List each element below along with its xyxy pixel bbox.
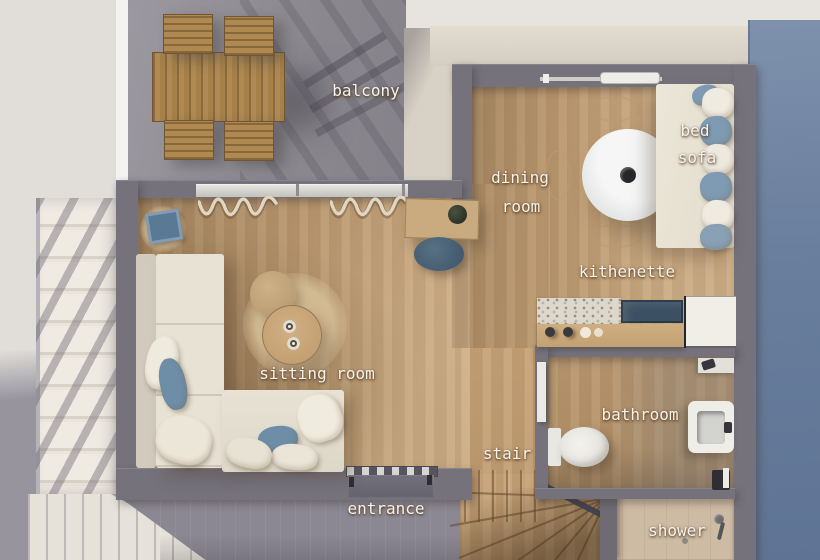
kitchen-faucet-knob: [545, 327, 555, 337]
balcony-chair: [224, 16, 274, 56]
window-frame-divider: [296, 184, 299, 196]
balcony-chair: [224, 121, 274, 161]
desk-stool: [414, 237, 464, 271]
dining-door-handle: [600, 72, 660, 84]
shower-partition-wall: [600, 494, 617, 560]
louvre-roof-strip: [36, 198, 122, 494]
label-entrance: entrance: [347, 499, 424, 518]
coffee-cup: [287, 337, 300, 350]
label-bed-sofa-line1: bed: [681, 121, 710, 140]
dining-door-bracket: [543, 74, 549, 83]
entrance-door: [348, 475, 434, 498]
balcony-dining-table: [152, 52, 285, 122]
sink-faucet: [724, 422, 732, 433]
entrance-door-handle: [427, 475, 432, 485]
adjacent-roof-panel: [748, 20, 820, 560]
label-bed-sofa-line2: sofa: [678, 148, 717, 167]
bathroom-wall-fixture-panel: [723, 468, 729, 488]
kitchen-white-block: [684, 296, 736, 348]
coffee-cup: [283, 320, 296, 333]
wall-bathroom-bottom: [535, 488, 735, 499]
label-balcony: balcony: [332, 81, 399, 100]
balcony-chair: [164, 120, 214, 160]
label-dining-room-line1: dining: [491, 168, 549, 187]
label-kitchenette: kithenette: [579, 262, 675, 281]
dining-table-centerpiece: [620, 167, 636, 183]
floorplan-render: balcony dining room bed sofa kithenette …: [0, 0, 820, 560]
label-stair: stair: [483, 444, 531, 463]
wall-outer-right: [734, 64, 756, 560]
kitchen-faucet-knob: [563, 327, 573, 337]
label-sitting-room: sitting room: [259, 364, 375, 383]
dining-door-bracket: [652, 73, 658, 82]
balcony-chair: [163, 14, 213, 54]
kitchen-cooktop: [621, 300, 683, 323]
desk-plant: [448, 205, 467, 224]
toilet-bowl: [559, 427, 609, 467]
kitchen-dish: [594, 328, 603, 337]
curtain-waves-right: [330, 196, 410, 226]
coffee-table: [262, 305, 322, 365]
ghost-chair-outline: [590, 224, 642, 248]
curtain-waves-left: [198, 196, 278, 226]
label-shower: shower: [648, 521, 706, 540]
exterior-sunlit-wall-top: [430, 26, 752, 66]
wall-sitting-left: [116, 180, 138, 490]
kitchen-counter-wood: [537, 324, 685, 347]
label-bathroom: bathroom: [601, 405, 678, 424]
blue-doormat: [145, 209, 183, 245]
bathroom-door: [537, 362, 546, 422]
kitchen-counter-terrazzo: [537, 298, 621, 325]
label-dining-room-line2: room: [502, 197, 541, 216]
entrance-door-handle: [349, 477, 354, 487]
window-frame-divider: [402, 184, 405, 196]
desk: [404, 198, 479, 240]
kitchen-dish: [580, 327, 591, 338]
ghost-chair-outline: [588, 96, 640, 122]
bathroom-sink-basin: [697, 411, 725, 444]
